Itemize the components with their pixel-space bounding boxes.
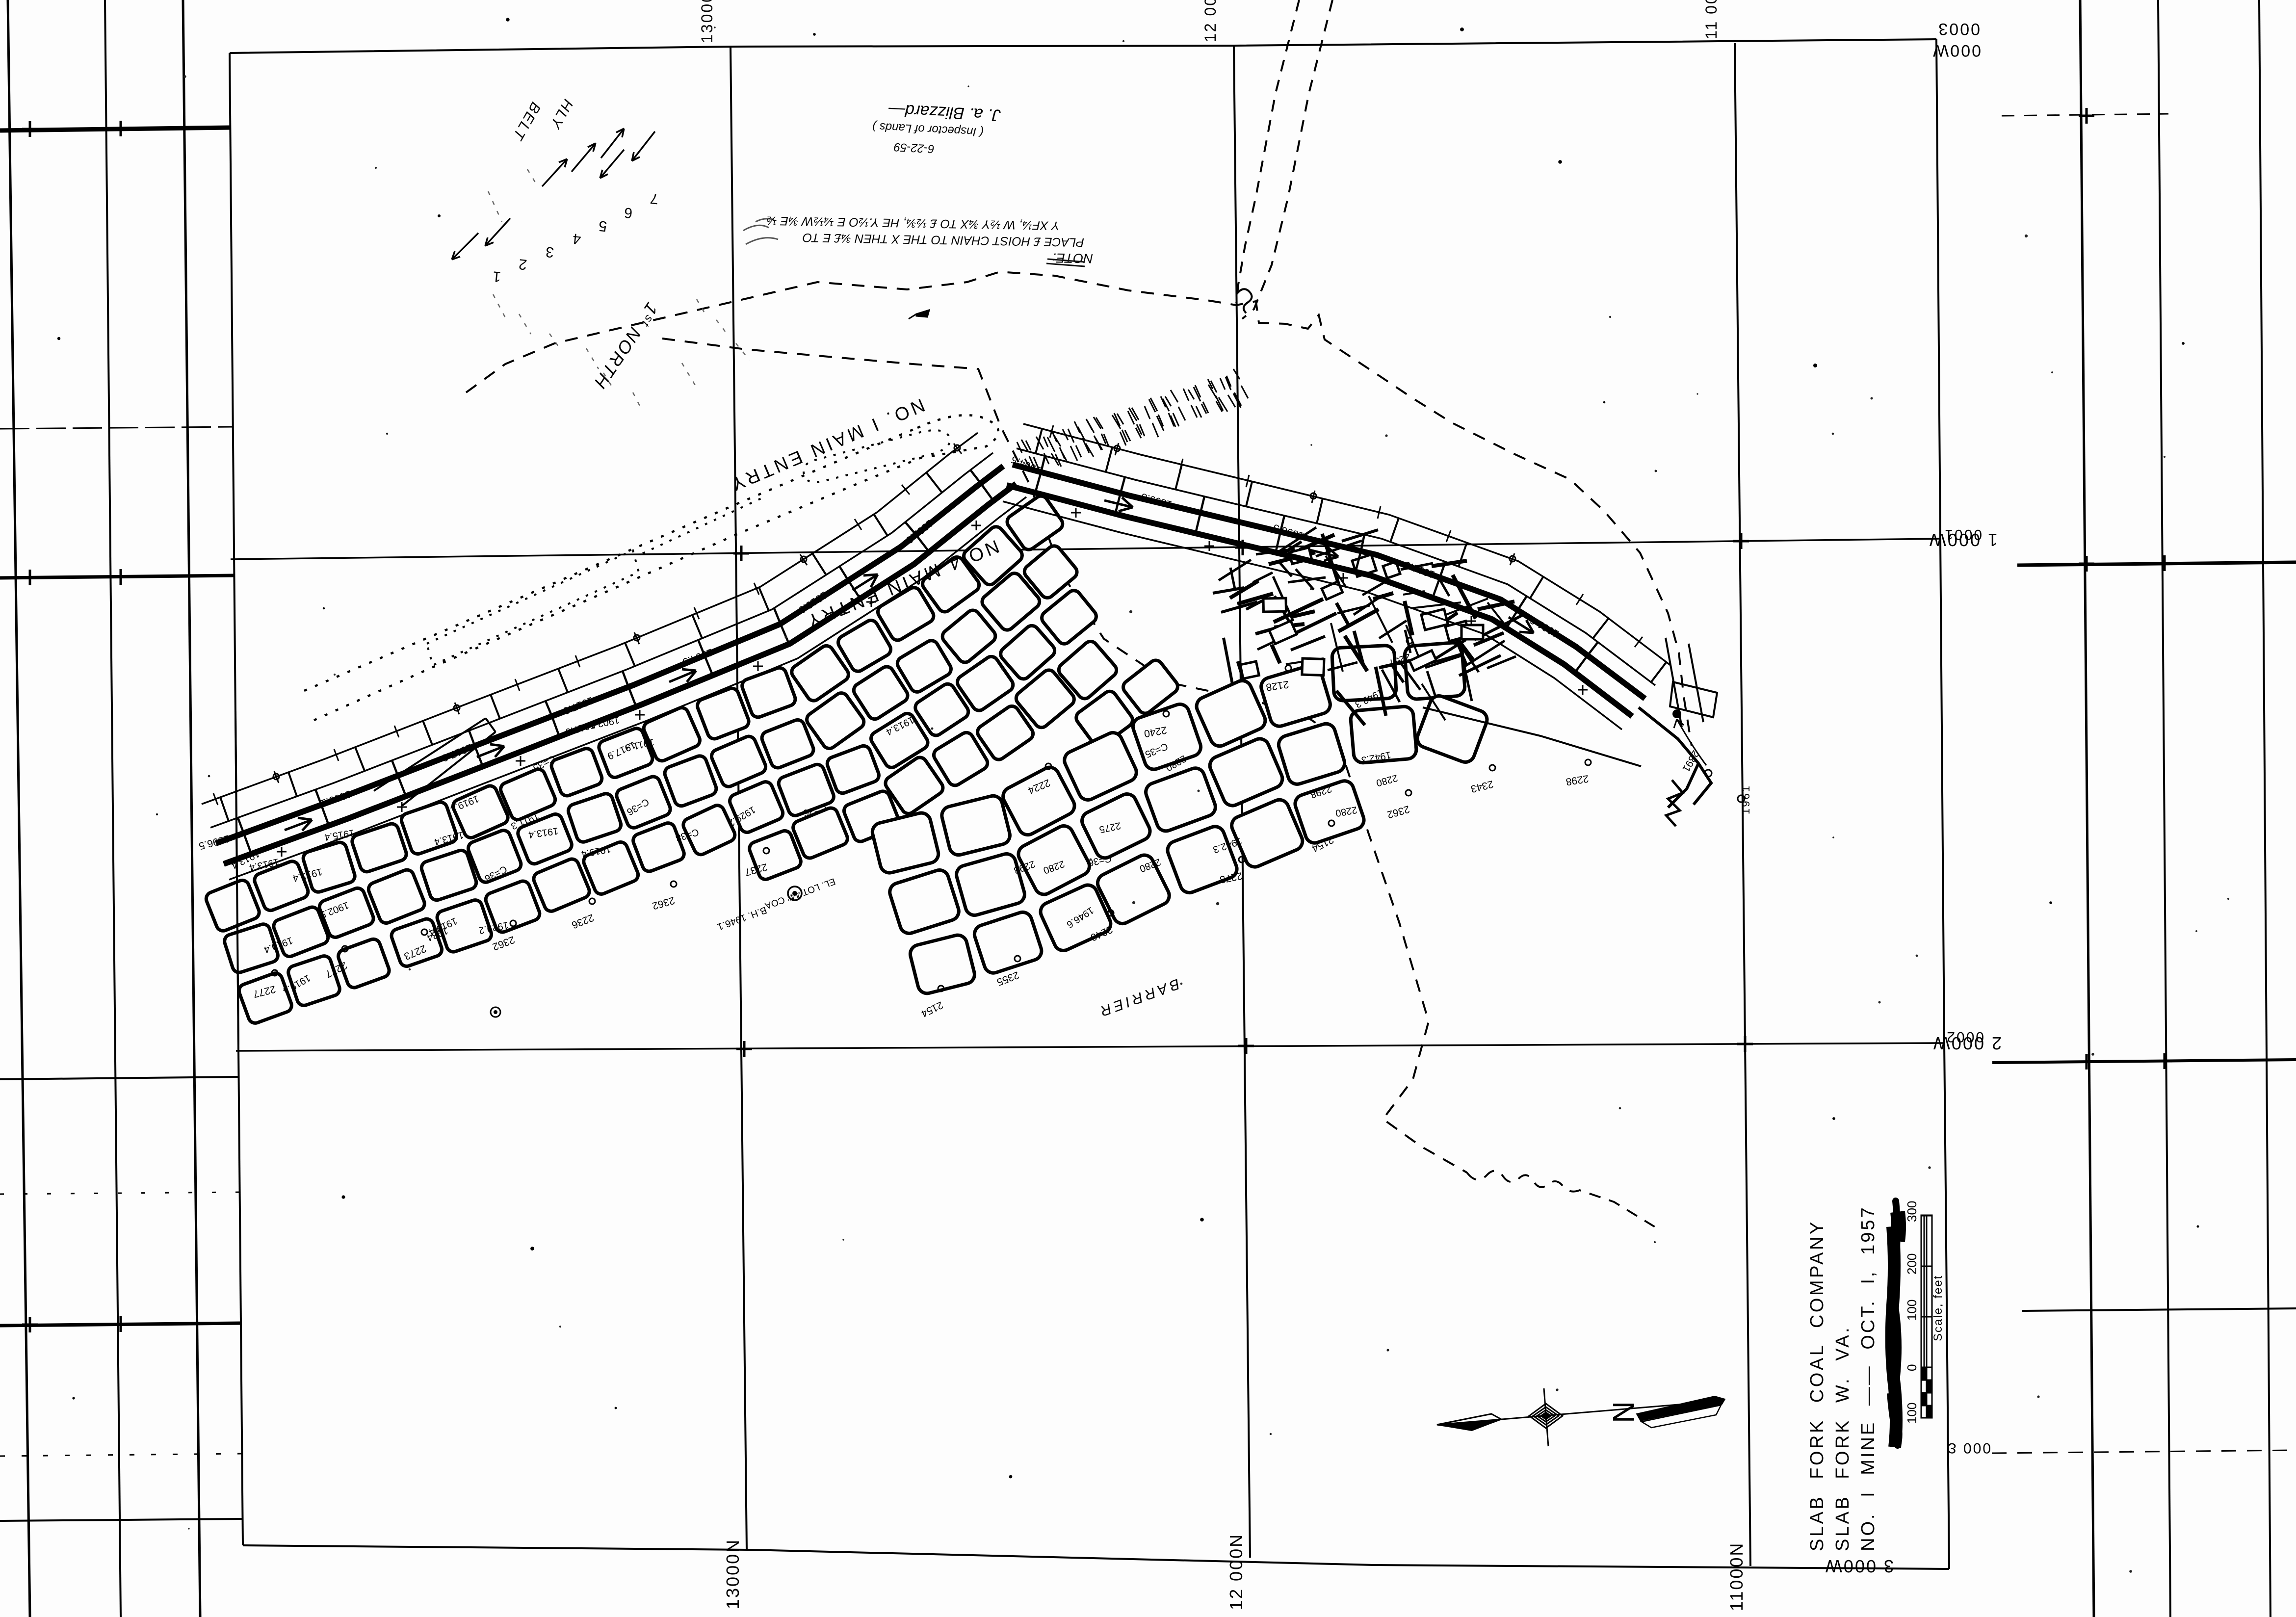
svg-text:4: 4 (572, 230, 582, 247)
svg-text:12 000 N: 12 000 N (1201, 0, 1219, 42)
svg-text:3 000W: 3 000W (1824, 1556, 1894, 1576)
svg-text:100: 100 (1905, 1403, 1919, 1424)
svg-text:5: 5 (598, 217, 608, 235)
svg-text:6: 6 (624, 204, 633, 221)
svg-text:000 Ɛ: 000 Ɛ (1946, 1440, 1991, 1456)
svg-text:0001: 0001 (1943, 526, 1982, 543)
svg-text:6-22-59: 6-22-59 (893, 140, 935, 156)
svg-text:Scale, feet: Scale, feet (1931, 1275, 1945, 1341)
svg-text:0003: 0003 (1937, 20, 1980, 38)
svg-text:11 000: 11 000 (1702, 0, 1720, 39)
svg-text:NO. I MINE —— OCT. I, 1957: NO. I MINE —— OCT. I, 1957 (1858, 1205, 1879, 1551)
svg-text:3: 3 (545, 243, 555, 261)
svg-text:100: 100 (1905, 1300, 1919, 1321)
svg-text:0002: 0002 (1945, 1029, 1984, 1045)
svg-text:SLAB FORK COAL COMPANY: SLAB FORK COAL COMPANY (1807, 1220, 1827, 1551)
svg-text:300: 300 (1905, 1201, 1919, 1222)
svg-text:NOTE:: NOTE: (1052, 251, 1093, 266)
svg-text:11000N: 11000N (1726, 1542, 1747, 1611)
svg-text:2: 2 (518, 256, 528, 273)
svg-text:000W: 000W (1931, 41, 1981, 60)
svg-text:7: 7 (650, 190, 659, 207)
svg-text:200: 200 (1905, 1253, 1919, 1275)
svg-text:1961: 1961 (1740, 784, 1752, 814)
svg-text:N: N (1606, 1401, 1640, 1423)
svg-text:12 000N: 12 000N (1226, 1533, 1246, 1610)
svg-text:13000N: 13000N (698, 0, 716, 43)
svg-text:1: 1 (492, 268, 502, 285)
svg-text:SLAB FORK W. VA.: SLAB FORK W. VA. (1832, 1326, 1853, 1551)
svg-text:13000N: 13000N (723, 1539, 743, 1609)
svg-text:0: 0 (1905, 1364, 1919, 1371)
